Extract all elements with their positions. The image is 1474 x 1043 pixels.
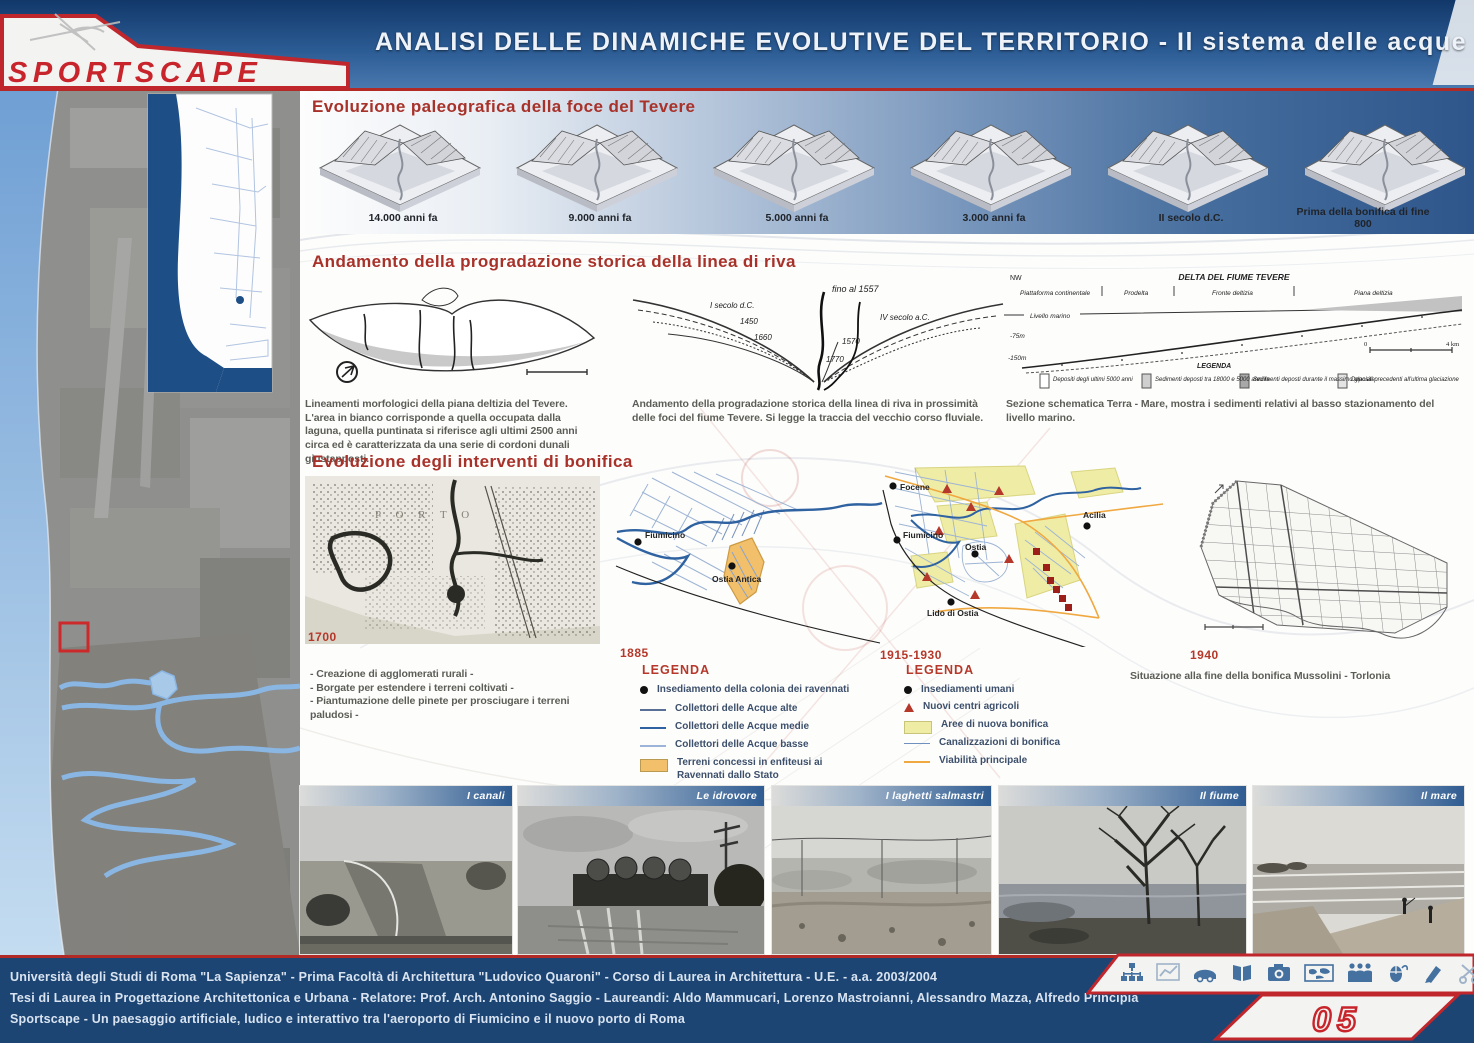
shore-year-1450: 1450: [740, 317, 758, 326]
network-icon[interactable]: [1120, 962, 1144, 984]
strata-legend-4: Depositi precedenti all'ultima glaciazio…: [1351, 377, 1460, 383]
depth-75: -75m: [1010, 333, 1025, 340]
main-road-line-marker: [904, 761, 930, 763]
photo-river: Il fiume: [999, 786, 1246, 954]
stage-label-5: II secolo d.C.: [1103, 212, 1279, 224]
poster-board: ANALISI DELLE DINAMICHE EVOLUTIVE DEL TE…: [0, 0, 1474, 1043]
aerial-photo-sidebar: [0, 88, 300, 955]
legend-label: Nuovi centri agricoli: [923, 701, 1019, 714]
zone-4: Piana deltizia: [1354, 290, 1393, 297]
zone-3: Fronte deltizia: [1212, 290, 1253, 297]
strata-legend-1: Depositi degli ultimi 5000 anni: [1053, 377, 1133, 383]
shore-year-ivsec: IV secolo a.C.: [880, 313, 930, 322]
stage-label-2: 9.000 anni fa: [512, 212, 688, 224]
photo-brackish-lakes: I laghetti salmastri: [772, 786, 991, 954]
photo-brackish-lakes-image: [772, 806, 991, 954]
sea-level-label: Livello marino: [1030, 313, 1070, 320]
caption-shoreline: Andamento della progradazione storica de…: [632, 398, 994, 425]
map1915-place-acilia: Acilia: [1083, 510, 1106, 520]
logo-shape: SPORTSCAPE: [0, 2, 352, 90]
page-number: 05: [1312, 1001, 1362, 1039]
car-icon[interactable]: [1192, 962, 1218, 984]
shore-year-1660: 1660: [754, 333, 772, 342]
acque-basse-line-marker: [640, 745, 666, 747]
inset-coastline-map: [148, 94, 272, 392]
map1700-year: 1700: [308, 630, 337, 644]
land-sea-section-diagram: NW DELTA DEL FIUME TEVERE Piattaforma co…: [1002, 268, 1467, 394]
acque-medie-line-marker: [640, 727, 666, 729]
enfiteusi-swatch-marker: [640, 759, 668, 772]
map1915-place-fiumicino: Fiumicino: [903, 530, 943, 540]
legend-label: Terreni concessi in enfiteusi ai Ravenna…: [677, 757, 867, 782]
shore-year-1770: 1770: [826, 355, 844, 364]
map1700-bullet-1: - Creazione di agglomerati rurali -: [310, 668, 610, 682]
sportscape-logo: SPORTSCAPE: [0, 2, 352, 90]
map-1940-grid: [1185, 475, 1463, 647]
map-1915-1930-reclamation: Focene Fiumicino Acilia Ostia Lido di Os…: [875, 462, 1167, 647]
settlement-dot-marker: [640, 686, 648, 694]
photo-label: Le idrovore: [697, 790, 757, 802]
human-settlement-dot-marker: [904, 686, 912, 694]
section-diagram-title: DELTA DEL FIUME TEVERE: [1178, 272, 1289, 282]
caption-section: Sezione schematica Terra - Mare, mostra …: [1006, 398, 1458, 425]
photo-label: Il mare: [1421, 790, 1457, 802]
chart-icon[interactable]: [1156, 962, 1180, 984]
footer-icon-row: [1120, 962, 1474, 984]
legend-label: Insediamento della colonia dei ravennati: [657, 684, 867, 697]
map1915-place-focene: Focene: [900, 482, 930, 492]
legend-label: Canalizzazioni di bonifica: [939, 737, 1060, 750]
book-icon[interactable]: [1230, 962, 1254, 984]
scissors-icon[interactable]: [1458, 962, 1474, 984]
new-reclamation-swatch-marker: [904, 721, 932, 734]
photo-river-image: [999, 806, 1246, 954]
delta-morphology-diagram: [302, 280, 602, 392]
people-icon[interactable]: [1346, 962, 1374, 984]
map1700-bullet-2: - Borgate per estendere i terreni coltiv…: [310, 682, 610, 696]
zone-1: Piattaforma continentale: [1020, 290, 1090, 297]
photo-label: I canali: [467, 790, 505, 802]
logo-text: SPORTSCAPE: [8, 57, 262, 89]
photo-label-bar: Le idrovore: [518, 786, 764, 806]
footer-line-project: Sportscape - Un paesaggio artificiale, l…: [10, 1012, 685, 1026]
map1915-place-lido: Lido di Ostia: [927, 608, 979, 618]
section-title-bonifica: Evoluzione degli interventi di bonifica: [312, 452, 633, 472]
shore-year-1557: fino al 1557: [832, 284, 880, 294]
map-1700-historic: P O R T O: [305, 476, 600, 644]
stage-label-4: 3.000 anni fa: [906, 212, 1082, 224]
map1885-place-fiumicino: Fiumicino: [645, 530, 685, 540]
map1915-year: 1915-1930: [880, 648, 942, 662]
map1885-legend-title: LEGENDA: [642, 663, 710, 677]
photo-label-bar: I laghetti salmastri: [772, 786, 991, 806]
photo-sea-image: [1253, 806, 1464, 954]
map1885-year: 1885: [620, 646, 649, 660]
canalization-line-marker: [904, 743, 930, 744]
map1940-year: 1940: [1190, 648, 1219, 662]
page-number-plate: 05: [1212, 993, 1464, 1043]
photo-pumps-image: [518, 806, 764, 954]
paleo-terrain-diagrams: [300, 110, 1474, 214]
map1700-bullet-3: - Piantumazione delle pinete per prosciu…: [310, 695, 580, 722]
stage-label-6: Prima della bonifica di fine 800: [1288, 206, 1438, 230]
legend-label: Collettori delle Acque basse: [675, 739, 809, 752]
footer-line-thesis: Tesi di Laurea in Progettazione Architet…: [10, 991, 1139, 1005]
pen-icon[interactable]: [1422, 962, 1446, 984]
photo-label: I laghetti salmastri: [886, 790, 984, 802]
legend-label: Insediamenti umani: [921, 684, 1014, 697]
map1940-caption: Situazione alla fine della bonifica Muss…: [1130, 670, 1470, 684]
legend-label: Viabilità principale: [939, 755, 1027, 768]
map-1885-canals: Fiumicino Ostia Antica: [612, 470, 887, 645]
scale-end: 4 km: [1446, 341, 1459, 348]
world-map-icon[interactable]: [1304, 962, 1334, 984]
agricultural-center-triangle-marker: [904, 703, 914, 712]
acque-alte-line-marker: [640, 709, 666, 711]
shoreline-progradation-diagram: fino al 1557 I secolo d.C. 1450 1660 IV …: [628, 278, 1008, 396]
photo-canals: I canali: [300, 786, 512, 954]
scale-zero: 0: [1364, 341, 1367, 348]
footer-line-university: Università degli Studi di Roma "La Sapie…: [10, 970, 937, 984]
photo-pumps: Le idrovore: [518, 786, 764, 954]
depth-150: -150m: [1008, 355, 1027, 362]
zone-2: Prodelta: [1124, 290, 1149, 297]
photo-canals-image: [300, 806, 512, 954]
corner-label: NW: [1010, 275, 1022, 282]
photo-label-bar: Il mare: [1253, 786, 1464, 806]
map1915-place-ostia: Ostia: [965, 542, 987, 552]
legend-label: Collettori delle Acque alte: [675, 703, 797, 716]
section-legend-title: LEGENDA: [1197, 363, 1231, 370]
legend-label: Collettori delle Acque medie: [675, 721, 809, 734]
stage-label-3: 5.000 anni fa: [709, 212, 885, 224]
map1915-legend-title: LEGENDA: [906, 663, 974, 677]
photo-label-bar: Il fiume: [999, 786, 1246, 806]
page-title: ANALISI DELLE DINAMICHE EVOLUTIVE DEL TE…: [375, 28, 1435, 57]
mouse-icon[interactable]: [1386, 962, 1410, 984]
map1885-place-ostia-antica: Ostia Antica: [712, 574, 762, 584]
map1700-inscription: P O R T O: [375, 509, 475, 521]
section-title-prograd: Andamento della progradazione storica de…: [312, 252, 796, 272]
camera-icon[interactable]: [1266, 962, 1292, 984]
photo-label-bar: I canali: [300, 786, 512, 806]
stage-label-1: 14.000 anni fa: [315, 212, 491, 224]
shore-year-isec: I secolo d.C.: [710, 301, 754, 310]
photo-label: Il fiume: [1200, 790, 1239, 802]
photo-sea: Il mare: [1253, 786, 1464, 954]
shore-year-1570: 1570: [842, 337, 860, 346]
legend-label: Aree di nuova bonifica: [941, 719, 1048, 732]
